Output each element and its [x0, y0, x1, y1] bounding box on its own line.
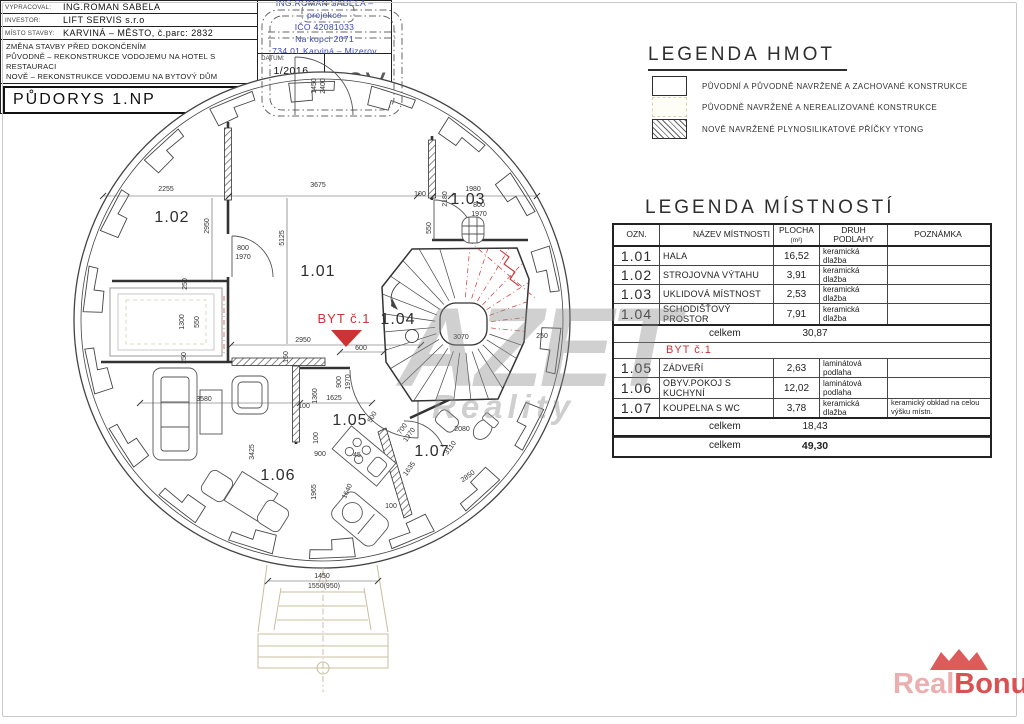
floor-plan: BYT č.1 1.011.021.031.041.051.061.07 225… [0, 0, 612, 724]
legend-item: PŮVODNĚ NAVRŽENÉ A NEREALIZOVANÉ KONSTRU… [652, 97, 937, 117]
rooms-table: OZN. NÁZEV MÍSTNOSTI PLOCHA (m²) DRUH PO… [612, 223, 992, 458]
legend-item-label: NOVĚ NAVRŽENÉ PLYNOSILIKATOVÉ PŘÍČKY YTO… [702, 125, 924, 134]
dim-label: 2255 [158, 186, 174, 193]
table-row: 1.03UKLIDOVÁ MÍSTNOST2,53keramická dlažb… [614, 285, 990, 304]
dim-label: 150 [283, 351, 290, 363]
table-row: 1.05ZÁDVEŘÍ2,63laminátová podlaha [614, 359, 990, 378]
dim-label: 3070 [453, 334, 469, 341]
dim-label: 1970 [471, 211, 487, 218]
sofa [153, 368, 197, 460]
room-label: 1.01 [300, 263, 335, 280]
dim-label: 3425 [249, 444, 256, 460]
legend-item-label: PŮVODNÍ A PŮVODNĚ NAVRŽENÉ A ZACHOVANÉ K… [702, 82, 968, 91]
dim-label: 100 [313, 432, 320, 444]
dim-label: 600 [355, 345, 367, 352]
total-row: celkem 49,30 [614, 437, 990, 456]
dim-label: 1965 [311, 484, 318, 500]
armchair [232, 376, 268, 414]
dim-label: 800 [473, 202, 485, 209]
col-header-floor: DRUH PODLAHY [820, 225, 888, 245]
elevator-shaft [110, 288, 224, 356]
col-header-name: NÁZEV MÍSTNOSTI [660, 225, 774, 245]
dim-label: 2180 [442, 191, 449, 207]
subtotal-row: celkem 18,43 [614, 419, 990, 437]
dim-label: 1970 [345, 374, 352, 390]
dim-label: 3675 [310, 182, 326, 189]
table-header-row: OZN. NÁZEV MÍSTNOSTI PLOCHA (m²) DRUH PO… [614, 225, 990, 247]
cleaning-sink [462, 217, 484, 243]
table-row: 1.04SCHODIŠŤOVÝ PROSTOR7,91keramická dla… [614, 304, 990, 326]
table-section-1: 1.01HALA16,52keramická dlažba1.02STROJOV… [614, 247, 990, 326]
table-row: 1.01HALA16,52keramická dlažba [614, 247, 990, 266]
table-row: 1.07KOUPELNA S WC3,78keramická dlažbaker… [614, 399, 990, 419]
dim-label: 1970 [235, 254, 251, 261]
stair-column [406, 330, 419, 343]
dim-label: 2400 [320, 78, 327, 94]
dim-label: 100 [414, 191, 426, 198]
dim-label: 250 [181, 352, 188, 364]
dim-label: 2950 [295, 337, 311, 344]
legend-item-label: PŮVODNĚ NAVRŽENÉ A NEREALIZOVANÉ KONSTRU… [702, 103, 937, 112]
col-header-area: PLOCHA (m²) [774, 225, 820, 245]
col-header-ozn: OZN. [614, 225, 660, 245]
hatch-box-swatch [652, 119, 687, 139]
faint-box-swatch [652, 97, 687, 117]
legend-item: PŮVODNÍ A PŮVODNĚ NAVRŽENÉ A ZACHOVANÉ K… [652, 76, 968, 96]
subtotal-row: celkem 30,87 [614, 326, 990, 343]
dim-label: 5125 [279, 230, 286, 246]
dim-label: 1300 [179, 314, 186, 330]
legend-item: NOVĚ NAVRŽENÉ PLYNOSILIKATOVÉ PŘÍČKY YTO… [652, 119, 924, 139]
byt-section-label: BYT č.1 [614, 343, 990, 359]
dim-label: 1360 [312, 388, 319, 404]
legend-hmot-title: LEGENDA HMOT [648, 44, 847, 71]
dim-label: 1625 [326, 395, 342, 402]
table-row: 1.02STROJOVNA VÝTAHU3,91keramická dlažba [614, 266, 990, 285]
room-label: 1.02 [154, 209, 189, 226]
dim-label: 1980 [465, 186, 481, 193]
solid-box-swatch [652, 76, 687, 96]
dim-label: 45 [353, 452, 361, 459]
byt-flag-label: BYT č.1 [317, 311, 370, 326]
dim-label: 2950 [204, 218, 211, 234]
room-label: 1.04 [380, 311, 415, 328]
realbonus-crown-icon [928, 648, 992, 672]
dim-label: 100 [385, 503, 397, 510]
dim-label: 800 [237, 245, 249, 252]
dim-label: 1550(950) [308, 583, 340, 590]
rooms-table-title: LEGENDA MÍSTNOSTÍ [645, 197, 894, 219]
dim-label: 2080 [454, 426, 470, 433]
dim-label: 100 [298, 403, 310, 410]
dim-label: 250 [182, 278, 189, 290]
dim-label: 550 [194, 316, 201, 328]
room-label: 1.05 [332, 412, 367, 429]
table-row: 1.06OBYV.POKOJ S KUCHYNÍ12,02laminátová … [614, 378, 990, 399]
drawing-sheet: BYT č.1 1.011.021.031.041.051.061.07 225… [0, 0, 1024, 724]
table-section-2: 1.05ZÁDVEŘÍ2,63laminátová podlaha1.06OBY… [614, 359, 990, 419]
dim-label: 1450 [311, 78, 318, 94]
dim-label: 3580 [196, 396, 212, 403]
col-header-note: POZNÁMKA [888, 225, 988, 245]
dim-label: 550 [426, 222, 433, 234]
dim-label: 250 [536, 333, 548, 340]
dim-label: 900 [336, 376, 343, 388]
dim-label: 1450 [314, 573, 330, 580]
dim-label: 900 [314, 451, 326, 458]
room-label: 1.06 [260, 467, 295, 484]
